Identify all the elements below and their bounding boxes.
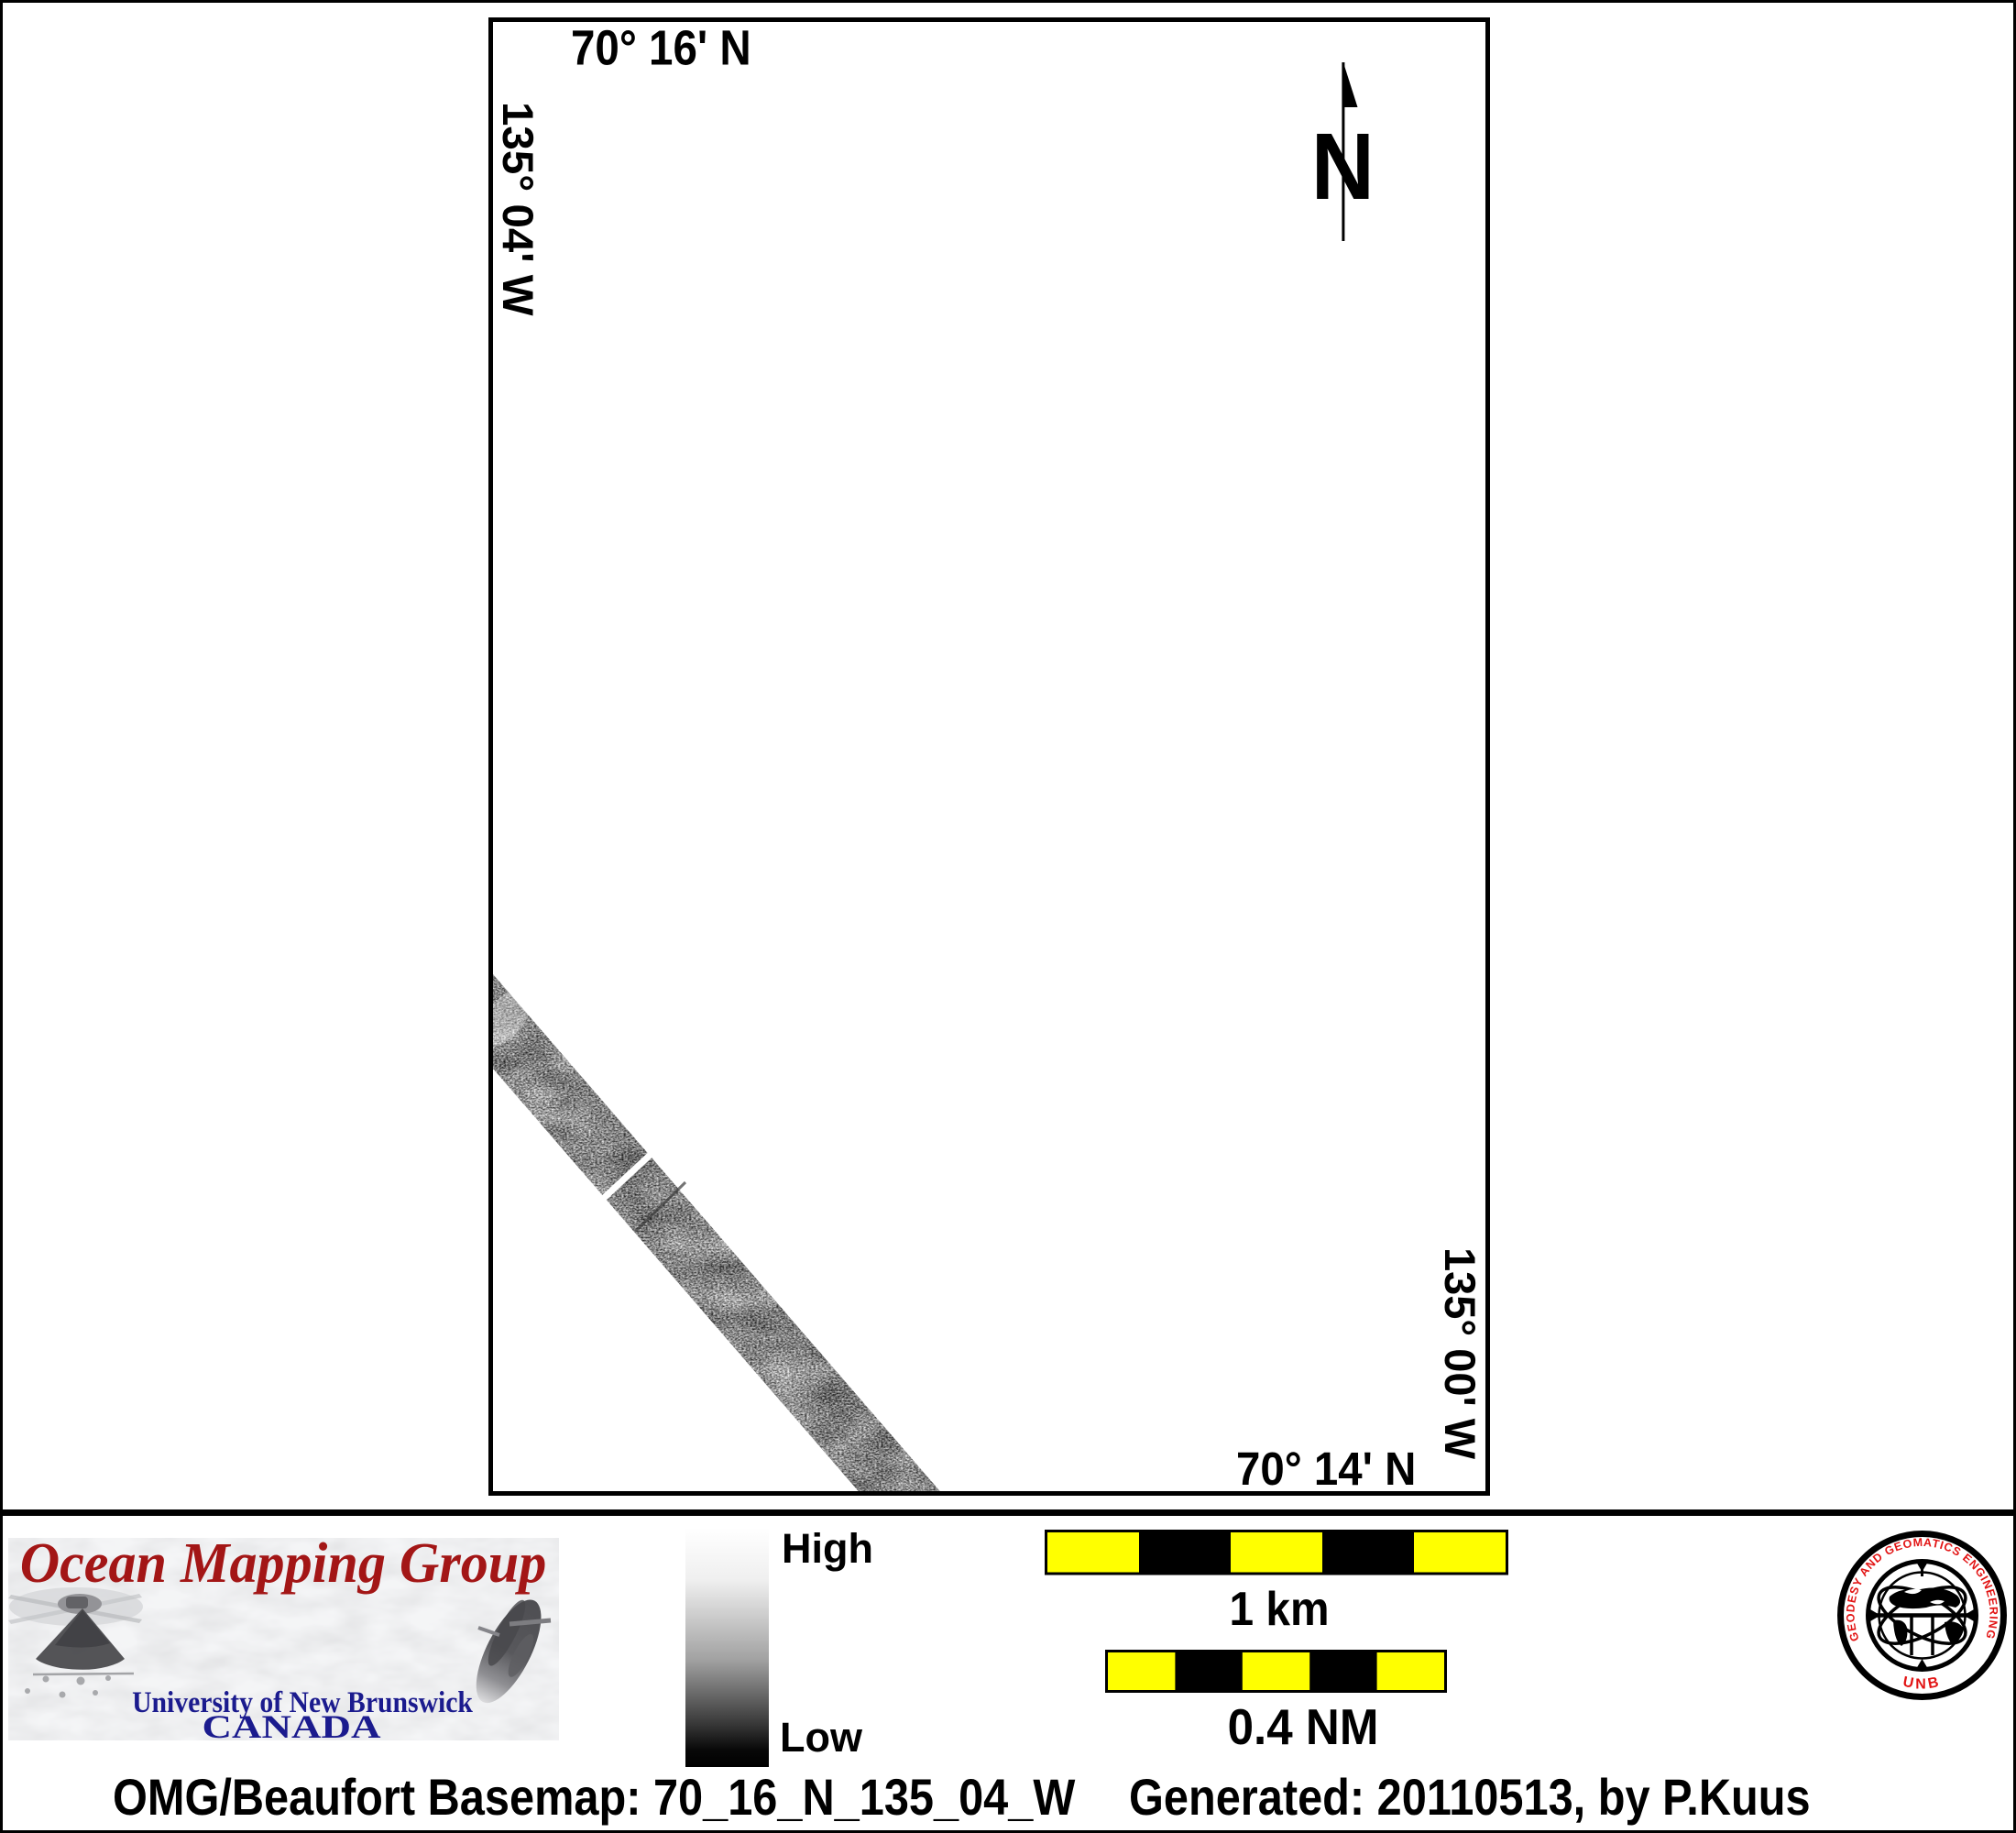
svg-text:135° 04' W: 135° 04' W xyxy=(493,102,542,316)
svg-text:0.4 NM: 0.4 NM xyxy=(1228,1699,1379,1755)
svg-text:UNB: UNB xyxy=(1901,1674,1943,1693)
svg-text:135° 00' W: 135° 00' W xyxy=(1436,1247,1485,1460)
svg-text:CANADA: CANADA xyxy=(203,1708,382,1745)
svg-text:High: High xyxy=(782,1525,873,1572)
svg-text:70° 16' N: 70° 16' N xyxy=(571,20,751,76)
svg-text:Low: Low xyxy=(780,1714,863,1761)
svg-text:OMG/Beaufort Basemap: 70_16_N_: OMG/Beaufort Basemap: 70_16_N_135_04_W xyxy=(113,1769,1076,1827)
svg-text:70° 14' N: 70° 14' N xyxy=(1236,1443,1416,1495)
svg-text:1 km: 1 km xyxy=(1229,1582,1329,1635)
svg-text:Ocean Mapping Group: Ocean Mapping Group xyxy=(20,1532,547,1595)
svg-text:N: N xyxy=(1311,115,1375,220)
svg-text:Generated: 20110513, by P.Kuus: Generated: 20110513, by P.Kuus xyxy=(1129,1769,1811,1827)
